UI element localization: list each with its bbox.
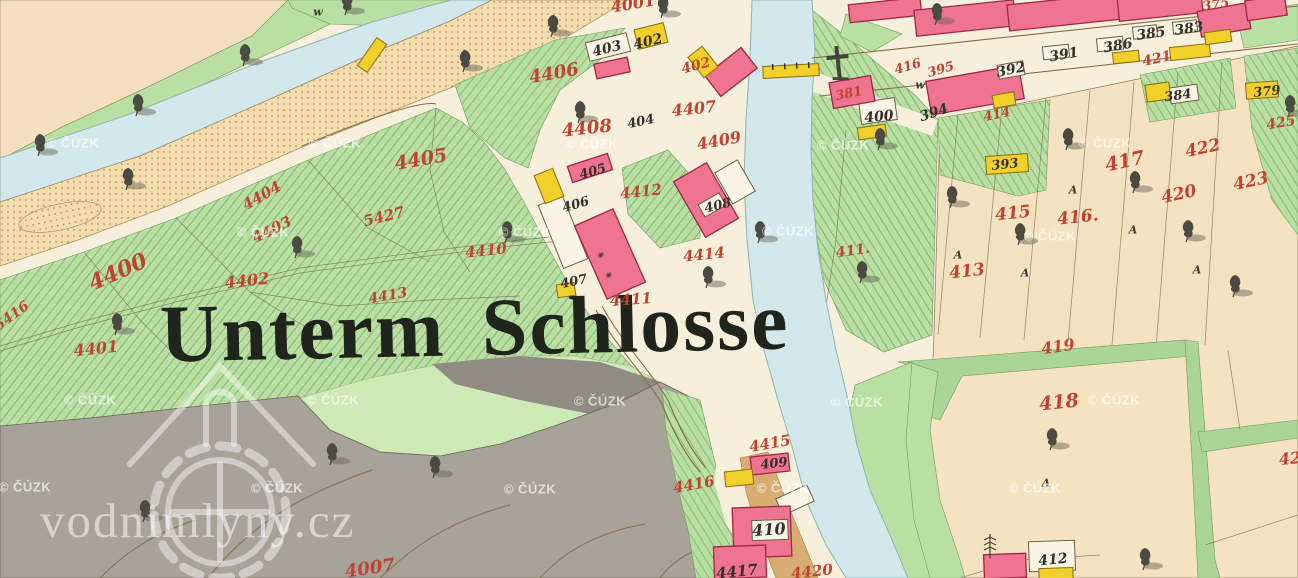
cadastral-map-canvas: 4001402440644074408440944054412441044144… bbox=[0, 0, 1298, 578]
map-title: Unterm Schlosse bbox=[159, 274, 790, 381]
site-watermark: vodnimlyny.cz bbox=[40, 492, 355, 549]
